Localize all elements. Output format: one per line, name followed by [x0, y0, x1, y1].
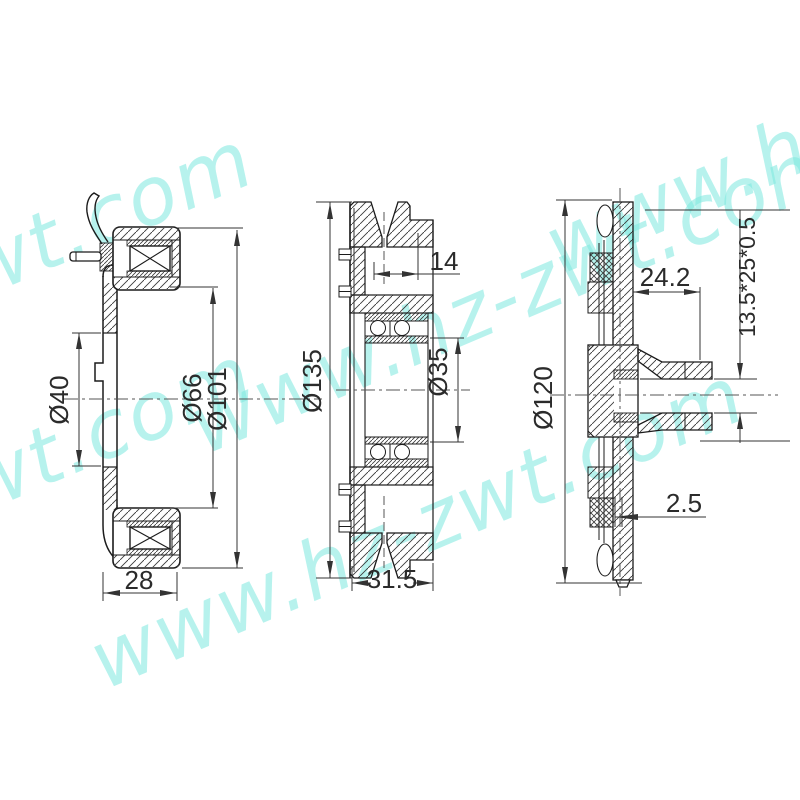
damper-lobe-top — [597, 205, 613, 237]
coil-housing-bottom — [113, 508, 180, 568]
coil-terminal-pin — [70, 252, 101, 261]
v-groove-top — [350, 202, 433, 247]
dim-label-24-2: 24.2 — [640, 262, 691, 292]
dim-label-o101: Ø101 — [202, 367, 232, 431]
damper-lobe-bottom — [597, 544, 613, 576]
watermark-layer: www.hz-zwt.com www.hz-zwt.com www.hz-zwt… — [0, 0, 800, 707]
dim-label-o40: Ø40 — [44, 375, 74, 424]
coil-housing-top — [113, 227, 180, 290]
hub-flange — [588, 345, 638, 437]
dimension-24-2: 24.2 — [633, 262, 700, 360]
drawing-canvas: www.hz-zwt.com www.hz-zwt.com www.hz-zwt… — [0, 0, 800, 800]
dim-label-o35: Ø35 — [423, 347, 453, 396]
coil-winding-symbol-top — [130, 246, 170, 271]
dim-label-2-5: 2.5 — [666, 488, 702, 518]
bearing-bottom — [365, 437, 428, 467]
dim-label-28: 28 — [125, 565, 154, 595]
dim-label-spline: 13.5*25*0.5 — [734, 217, 760, 337]
dim-label-14: 14 — [430, 246, 459, 276]
rivet-block-bottom — [588, 467, 613, 527]
dim-label-o135: Ø135 — [297, 349, 327, 413]
dimension-o35: Ø35 — [423, 338, 464, 442]
bearing-top — [365, 313, 428, 343]
technical-drawing: www.hz-zwt.com www.hz-zwt.com www.hz-zwt… — [0, 0, 800, 800]
dim-label-o120: Ø120 — [528, 366, 558, 430]
coil-winding-symbol-bottom — [130, 527, 170, 549]
dim-label-31-5: 31.5 — [367, 564, 418, 594]
rivet-block-top — [588, 253, 613, 313]
